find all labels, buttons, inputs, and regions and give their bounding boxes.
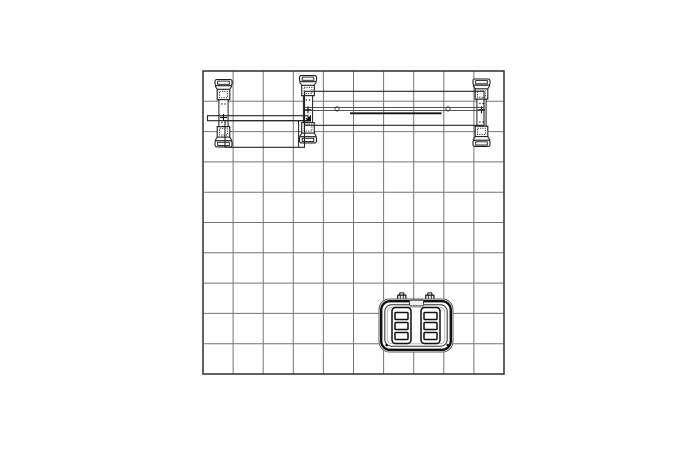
- case-rib-panel: [392, 308, 411, 344]
- booth-plan-drawing: [0, 0, 700, 450]
- extrusion-post-left: [215, 80, 232, 147]
- booth-floor-grid: [203, 71, 504, 374]
- frame-beams: [208, 91, 485, 147]
- shipping-case: [379, 293, 453, 352]
- drawing-page: [0, 0, 700, 450]
- case-rib-panel: [421, 308, 440, 344]
